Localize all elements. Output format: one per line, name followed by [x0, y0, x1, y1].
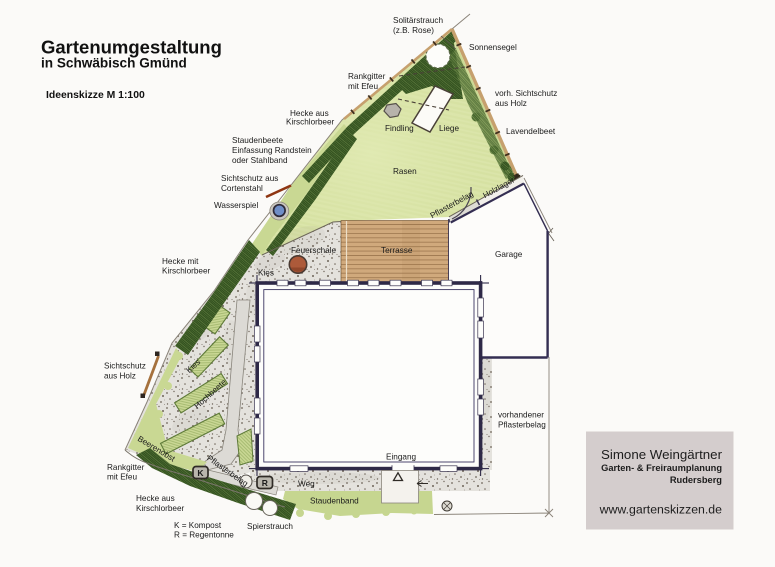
svg-text:Rankgitter: Rankgitter [348, 72, 386, 81]
svg-text:mit Efeu: mit Efeu [348, 82, 378, 91]
svg-text:Cortenstahl: Cortenstahl [221, 184, 263, 193]
svg-text:Sichtschutz aus: Sichtschutz aus [221, 174, 278, 183]
svg-text:in Schwäbisch Gmünd: in Schwäbisch Gmünd [41, 56, 187, 71]
svg-text:Staudenbeete: Staudenbeete [232, 136, 283, 145]
svg-text:Rasen: Rasen [393, 167, 417, 176]
svg-text:Hecke aus: Hecke aus [136, 494, 175, 503]
svg-text:Ideenskizze M 1:100: Ideenskizze M 1:100 [46, 90, 145, 101]
svg-text:Solitärstrauch: Solitärstrauch [393, 16, 444, 25]
svg-text:Terrasse: Terrasse [381, 246, 413, 255]
svg-text:Liege: Liege [439, 124, 459, 133]
svg-text:Staudenband: Staudenband [310, 497, 359, 506]
svg-text:Rudersberg: Rudersberg [670, 475, 722, 485]
svg-text:Rankgitter: Rankgitter [107, 463, 145, 472]
svg-text:aus Holz: aus Holz [495, 99, 527, 108]
svg-text:Simone Weingärtner: Simone Weingärtner [601, 447, 723, 462]
svg-text:Kirschlorbeer: Kirschlorbeer [286, 118, 335, 127]
svg-text:Kirschlorbeer: Kirschlorbeer [136, 504, 185, 513]
svg-text:Feuerschale: Feuerschale [291, 246, 337, 255]
svg-text:Garage: Garage [495, 250, 523, 259]
svg-text:Spierstrauch: Spierstrauch [247, 522, 293, 531]
svg-text:Sichtschutz: Sichtschutz [104, 362, 146, 371]
svg-text:R: R [262, 478, 268, 488]
svg-text:mit Efeu: mit Efeu [107, 473, 137, 482]
svg-text:(z.B. Rose): (z.B. Rose) [393, 26, 434, 35]
svg-text:vorhandener: vorhandener [498, 411, 544, 420]
svg-text:Lavendelbeet: Lavendelbeet [506, 127, 556, 136]
svg-text:R = Regentonne: R = Regentonne [174, 531, 234, 540]
svg-text:Kies: Kies [258, 269, 274, 278]
svg-text:Sonnensegel: Sonnensegel [469, 43, 517, 52]
svg-text:Findling: Findling [385, 124, 414, 133]
svg-text:www.gartenskizzen.de: www.gartenskizzen.de [599, 503, 723, 517]
svg-text:Hecke mit: Hecke mit [162, 257, 199, 266]
svg-text:Weg: Weg [298, 480, 315, 489]
svg-text:Wasserspiel: Wasserspiel [214, 201, 258, 210]
svg-text:vorh. Sichtschutz: vorh. Sichtschutz [495, 89, 557, 98]
svg-text:Garten- & Freiraumplanung: Garten- & Freiraumplanung [601, 463, 722, 473]
svg-text:Pflasterbelag: Pflasterbelag [498, 421, 546, 430]
svg-text:K = Kompost: K = Kompost [174, 521, 222, 530]
svg-text:aus Holz: aus Holz [104, 372, 136, 381]
svg-text:Einfassung Randstein: Einfassung Randstein [232, 146, 312, 155]
svg-text:K: K [197, 468, 204, 478]
svg-text:Kirschlorbeer: Kirschlorbeer [162, 267, 211, 276]
svg-text:oder Stahlband: oder Stahlband [232, 156, 288, 165]
svg-text:Gartenumgestaltung: Gartenumgestaltung [41, 37, 222, 58]
svg-text:Eingang: Eingang [386, 453, 416, 462]
